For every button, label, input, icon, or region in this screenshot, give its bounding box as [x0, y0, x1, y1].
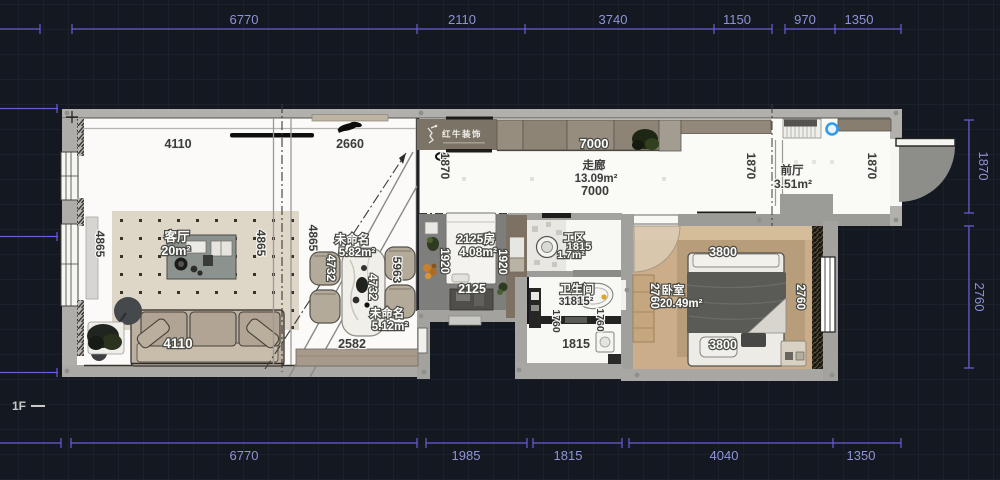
svg-text:1815: 1815 — [564, 296, 590, 308]
svg-text:4040: 4040 — [710, 448, 739, 463]
svg-text:卧室: 卧室 — [662, 283, 685, 297]
svg-text:客厅: 客厅 — [163, 229, 190, 244]
svg-text:5.82m²: 5.82m² — [339, 247, 376, 259]
svg-text:1815: 1815 — [554, 448, 583, 463]
svg-text:卫生间: 卫生间 — [560, 282, 595, 296]
svg-text:20.49m²: 20.49m² — [660, 298, 703, 310]
svg-text:1920: 1920 — [438, 248, 450, 274]
svg-text:3.51m²: 3.51m² — [774, 177, 812, 191]
svg-text:红牛装饰: 红牛装饰 — [442, 129, 482, 139]
svg-text:5.12m²: 5.12m² — [372, 321, 409, 333]
svg-text:2582: 2582 — [338, 337, 366, 351]
svg-text:4865: 4865 — [306, 225, 320, 252]
svg-text:3800: 3800 — [709, 338, 737, 352]
svg-text:未命名: 未命名 — [369, 306, 405, 320]
svg-text:1815: 1815 — [562, 337, 590, 351]
svg-text:6770: 6770 — [230, 448, 259, 463]
svg-text:2660: 2660 — [336, 137, 364, 151]
svg-text:1870: 1870 — [865, 153, 879, 180]
svg-text:6770: 6770 — [230, 12, 259, 27]
svg-text:1.7m²: 1.7m² — [557, 249, 585, 261]
svg-text:1870: 1870 — [744, 153, 758, 180]
svg-text:1350: 1350 — [845, 12, 874, 27]
svg-text:走廊: 走廊 — [582, 158, 606, 172]
svg-text:1985: 1985 — [452, 448, 481, 463]
svg-text:4110: 4110 — [164, 137, 191, 151]
svg-text:2760: 2760 — [648, 283, 660, 309]
svg-text:1870: 1870 — [438, 153, 452, 180]
svg-text:2760: 2760 — [794, 284, 806, 310]
svg-text:970: 970 — [794, 12, 816, 27]
svg-text:3800: 3800 — [709, 245, 737, 259]
svg-text:4865: 4865 — [93, 231, 107, 258]
svg-text:前厅: 前厅 — [781, 163, 804, 177]
svg-text:1760: 1760 — [550, 309, 562, 333]
svg-text:5963: 5963 — [390, 257, 404, 284]
svg-text:1920: 1920 — [496, 249, 508, 275]
svg-text:7000: 7000 — [581, 184, 609, 198]
svg-text:2125房: 2125房 — [457, 231, 496, 246]
svg-text:7000: 7000 — [580, 136, 609, 151]
svg-text:2125: 2125 — [458, 282, 486, 296]
svg-text:4.08m²: 4.08m² — [459, 245, 497, 259]
svg-text:4732: 4732 — [324, 255, 338, 282]
svg-text:2110: 2110 — [448, 12, 476, 27]
svg-text:3740: 3740 — [599, 12, 628, 27]
svg-text:2760: 2760 — [972, 283, 987, 312]
svg-text:1760: 1760 — [594, 308, 606, 332]
svg-text:1350: 1350 — [847, 448, 876, 463]
svg-text:4865: 4865 — [254, 230, 268, 257]
svg-text:4732: 4732 — [366, 274, 380, 301]
svg-text:未命名: 未命名 — [334, 232, 370, 246]
svg-text:1F: 1F — [12, 399, 26, 413]
svg-text:1870: 1870 — [976, 152, 991, 181]
svg-text:4110: 4110 — [163, 336, 192, 351]
svg-text:1150: 1150 — [723, 12, 751, 27]
svg-text:20m²: 20m² — [161, 244, 190, 258]
